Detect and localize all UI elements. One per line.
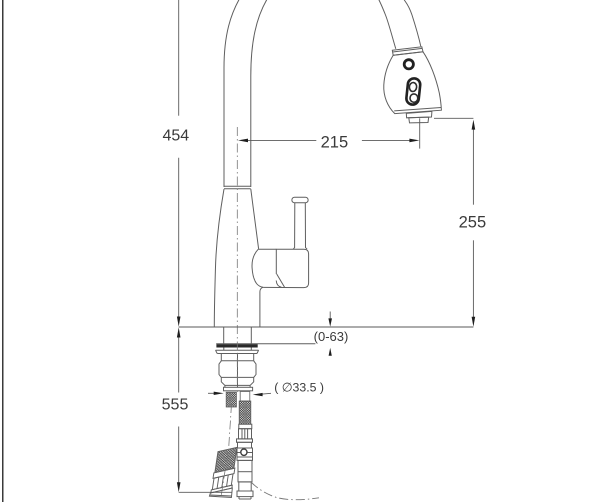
svg-text:( ∅33.5 ): ( ∅33.5 ) xyxy=(274,380,324,394)
svg-text:454: 454 xyxy=(162,128,189,145)
svg-text:(0-63): (0-63) xyxy=(314,329,349,344)
svg-text:215: 215 xyxy=(321,133,349,151)
svg-text:555: 555 xyxy=(162,397,189,414)
svg-text:255: 255 xyxy=(459,213,487,231)
